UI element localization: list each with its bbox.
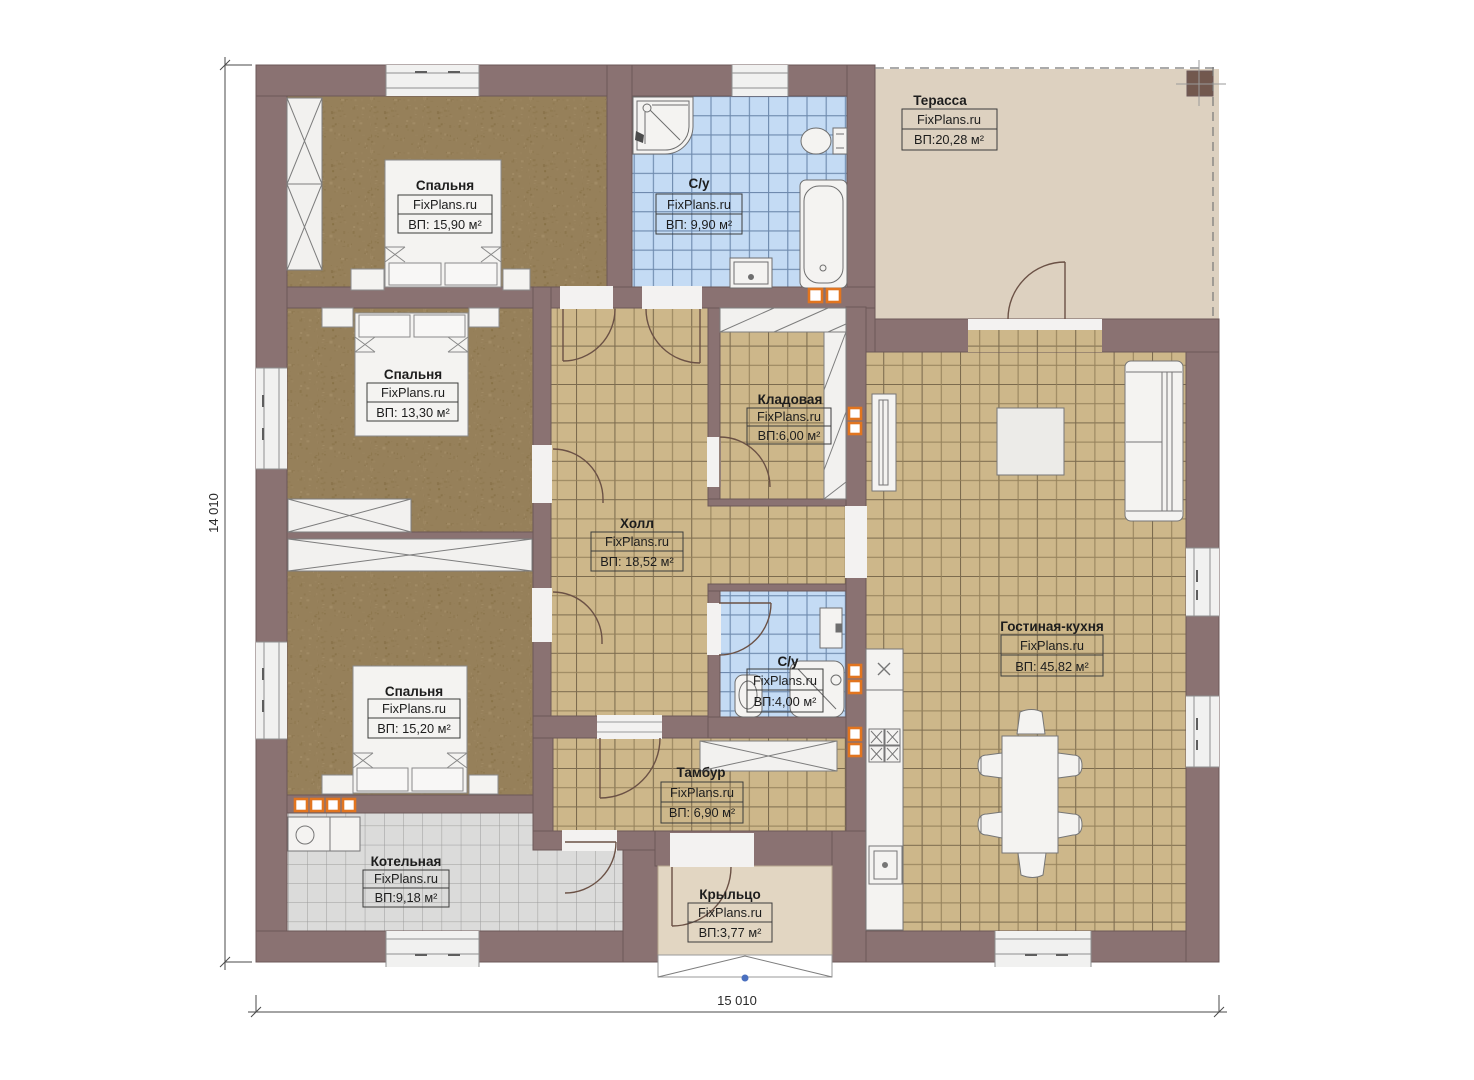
svg-text:Терасса: Терасса (913, 93, 967, 108)
svg-text:FixPlans.ru: FixPlans.ru (670, 785, 734, 800)
svg-text:ВП: 45,82 м²: ВП: 45,82 м² (1015, 659, 1089, 674)
svg-text:ВП:4,00 м²: ВП:4,00 м² (754, 694, 818, 709)
svg-text:FixPlans.ru: FixPlans.ru (753, 673, 817, 688)
svg-text:14 010: 14 010 (206, 493, 221, 533)
svg-text:ВП: 18,52 м²: ВП: 18,52 м² (600, 554, 674, 569)
svg-text:Тамбур: Тамбур (677, 765, 726, 780)
svg-text:Крыльцо: Крыльцо (699, 887, 760, 902)
svg-text:Спальня: Спальня (416, 178, 474, 193)
svg-text:Гостиная-кухня: Гостиная-кухня (1000, 619, 1103, 634)
svg-text:С/у: С/у (777, 654, 799, 669)
svg-text:ВП:9,18 м²: ВП:9,18 м² (375, 890, 439, 905)
svg-text:ВП: 13,30 м²: ВП: 13,30 м² (376, 405, 450, 420)
svg-text:15 010: 15 010 (717, 993, 757, 1008)
svg-text:FixPlans.ru: FixPlans.ru (374, 871, 438, 886)
svg-text:Холл: Холл (620, 516, 654, 531)
svg-text:FixPlans.ru: FixPlans.ru (698, 905, 762, 920)
svg-text:FixPlans.ru: FixPlans.ru (381, 385, 445, 400)
svg-text:FixPlans.ru: FixPlans.ru (917, 112, 981, 127)
svg-text:ВП: 15,20 м²: ВП: 15,20 м² (377, 721, 451, 736)
svg-text:FixPlans.ru: FixPlans.ru (667, 197, 731, 212)
svg-text:С/у: С/у (688, 176, 710, 191)
svg-text:Кладовая: Кладовая (758, 392, 823, 407)
svg-text:Котельная: Котельная (371, 854, 442, 869)
svg-text:ВП: 6,90 м²: ВП: 6,90 м² (669, 805, 736, 820)
svg-text:ВП:6,00 м²: ВП:6,00 м² (758, 428, 822, 443)
svg-text:ВП: 9,90 м²: ВП: 9,90 м² (666, 217, 733, 232)
svg-text:FixPlans.ru: FixPlans.ru (382, 701, 446, 716)
svg-text:Спальня: Спальня (385, 684, 443, 699)
svg-text:FixPlans.ru: FixPlans.ru (605, 534, 669, 549)
svg-text:FixPlans.ru: FixPlans.ru (1020, 638, 1084, 653)
svg-text:ВП:20,28 м²: ВП:20,28 м² (914, 132, 985, 147)
svg-text:ВП: 15,90 м²: ВП: 15,90 м² (408, 217, 482, 232)
svg-text:FixPlans.ru: FixPlans.ru (413, 197, 477, 212)
svg-text:Спальня: Спальня (384, 367, 442, 382)
svg-text:ВП:3,77 м²: ВП:3,77 м² (699, 925, 763, 940)
svg-text:FixPlans.ru: FixPlans.ru (757, 409, 821, 424)
